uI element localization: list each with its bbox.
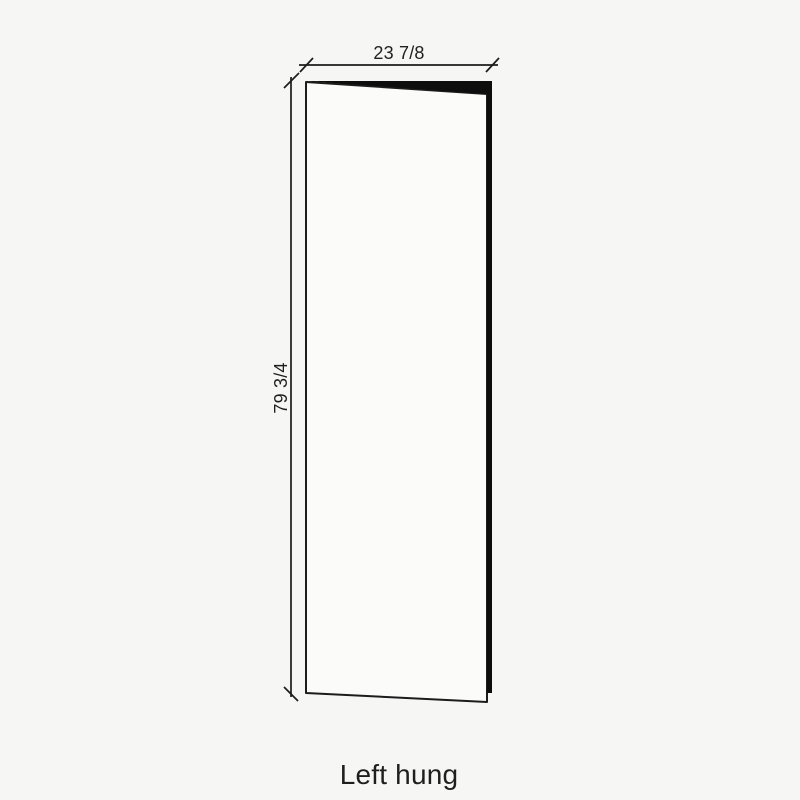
height-dimension: 79 3/4 xyxy=(271,73,299,701)
door-diagram-canvas: 23 7/8 79 3/4 Left hung xyxy=(0,0,800,800)
height-dimension-label: 79 3/4 xyxy=(271,362,291,413)
door-face xyxy=(306,82,487,702)
width-dimension: 23 7/8 xyxy=(299,43,499,72)
door-hang-caption: Left hung xyxy=(340,759,459,790)
door-diagram: 23 7/8 79 3/4 Left hung xyxy=(0,0,800,800)
width-dimension-label: 23 7/8 xyxy=(373,43,424,63)
